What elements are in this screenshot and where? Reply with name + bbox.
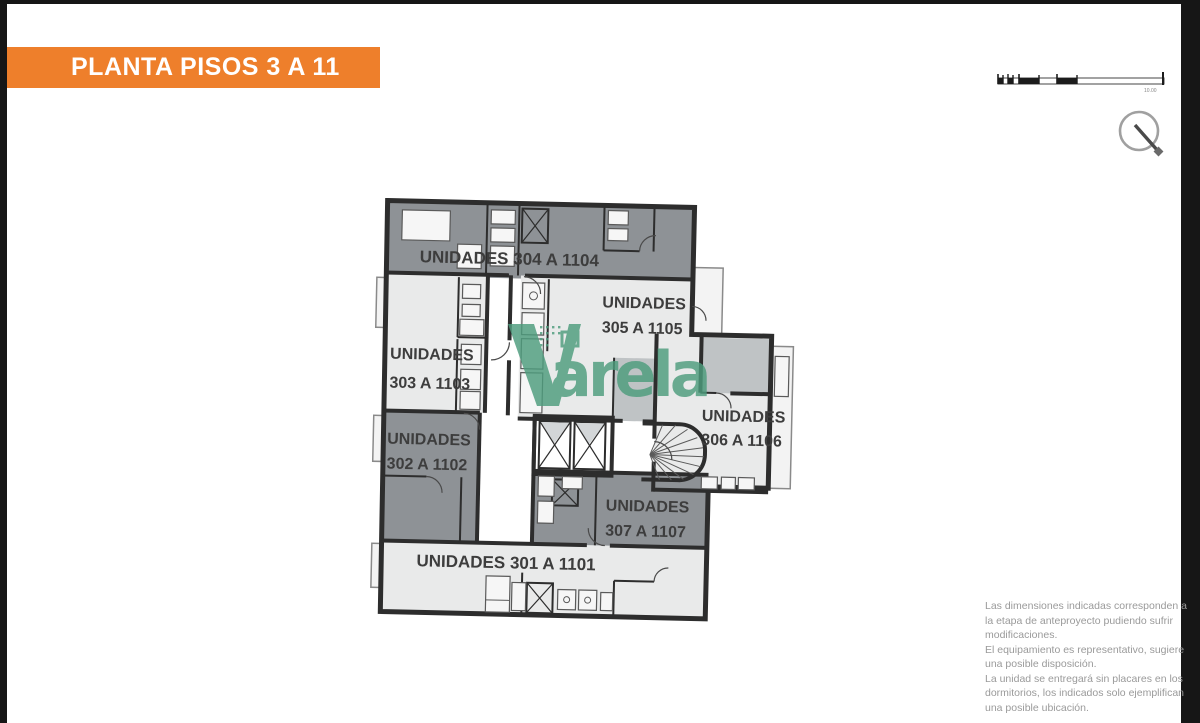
plan-sheet: PLANTA PISOS 3 A 11 10.00 <box>0 0 1200 723</box>
elevator-core <box>533 416 612 476</box>
floor-plan: UNIDADES 304 A 1104 UNIDADES 305 A 1105 … <box>368 192 810 634</box>
unit-label-306-line2: 306 A 1106 <box>701 432 782 451</box>
note-line: la etapa de anteproyecto pudiendo sufrir <box>985 614 1185 629</box>
unit-label-301: UNIDADES 301 A 1101 <box>416 551 596 574</box>
unit-label-306-line1: UNIDADES <box>702 408 786 427</box>
scale-bar-graphic <box>998 72 1164 85</box>
note-line: La unidad se entregará sin placares en l… <box>985 672 1185 687</box>
note-line: modificaciones. <box>985 628 1185 643</box>
unit-label-307-line2: 307 A 1107 <box>605 523 686 542</box>
note-line: Las dimensiones indicadas corresponden a <box>985 599 1185 614</box>
title-banner: PLANTA PISOS 3 A 11 <box>7 47 380 88</box>
unit-label-305-line1: UNIDADES <box>602 294 686 313</box>
scale-end-label: 10.00 <box>1144 88 1157 94</box>
frame-top-edge <box>0 0 1200 4</box>
unit-label-303-line1: UNIDADES <box>390 346 474 365</box>
unit-label-307-line1: UNIDADES <box>606 498 690 517</box>
disclaimer-notes: Las dimensiones indicadas corresponden a… <box>985 599 1185 715</box>
unit-label-305-line2: 305 A 1105 <box>602 319 683 338</box>
note-line: una posible disposición. <box>985 657 1185 672</box>
note-line: dormitorios, los indicados solo ejemplif… <box>985 686 1185 701</box>
balcony-top-right <box>692 267 724 335</box>
unit-label-302-line1: UNIDADES <box>387 431 471 450</box>
note-line: El equipamiento es representativo, sugie… <box>985 643 1185 658</box>
page-title: PLANTA PISOS 3 A 11 <box>71 53 340 81</box>
frame-left-edge <box>0 0 7 723</box>
unit-label-303-line2: 303 A 1103 <box>389 375 470 394</box>
north-arrow-icon <box>1110 104 1174 168</box>
note-line: una posible ubicación. <box>985 701 1185 716</box>
scale-bar: 10.00 <box>996 66 1176 100</box>
unit-label-302-line2: 302 A 1102 <box>386 456 467 475</box>
